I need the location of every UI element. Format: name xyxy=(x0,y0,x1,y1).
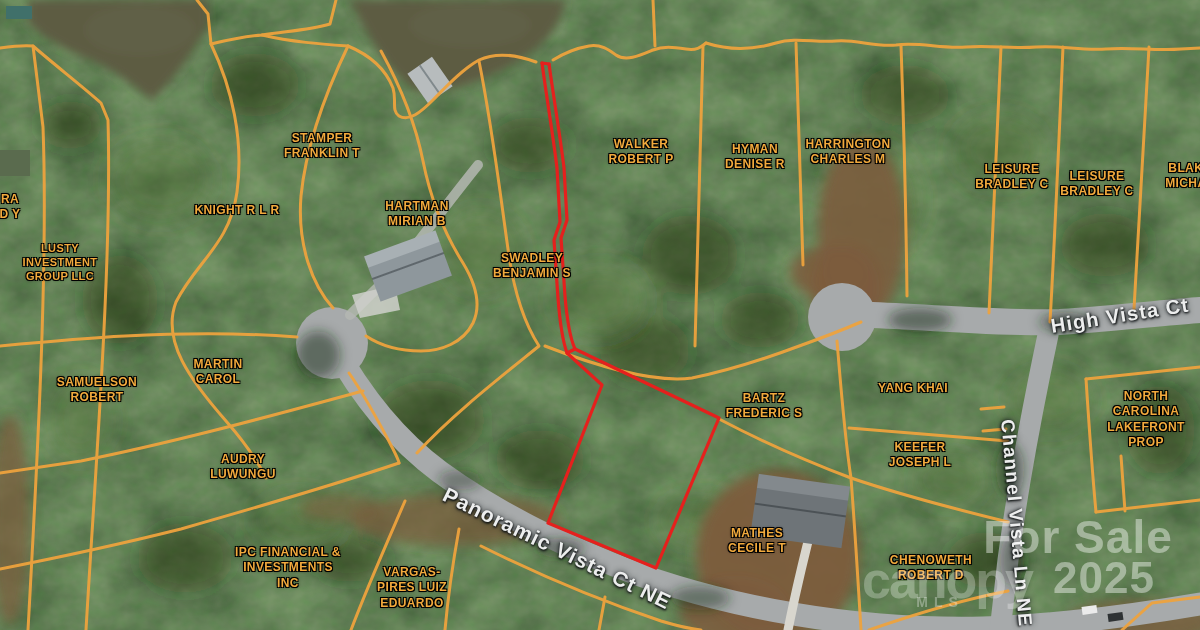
left-edge-building xyxy=(0,150,30,176)
dock-structure xyxy=(6,6,32,19)
high-vista-culdesac xyxy=(808,283,876,351)
map-canvas xyxy=(0,0,1200,630)
parcel-map: RA D YLUSTY INVESTMENT GROUP LLCSTAMPER … xyxy=(0,0,1200,630)
mathes-house xyxy=(750,474,850,548)
